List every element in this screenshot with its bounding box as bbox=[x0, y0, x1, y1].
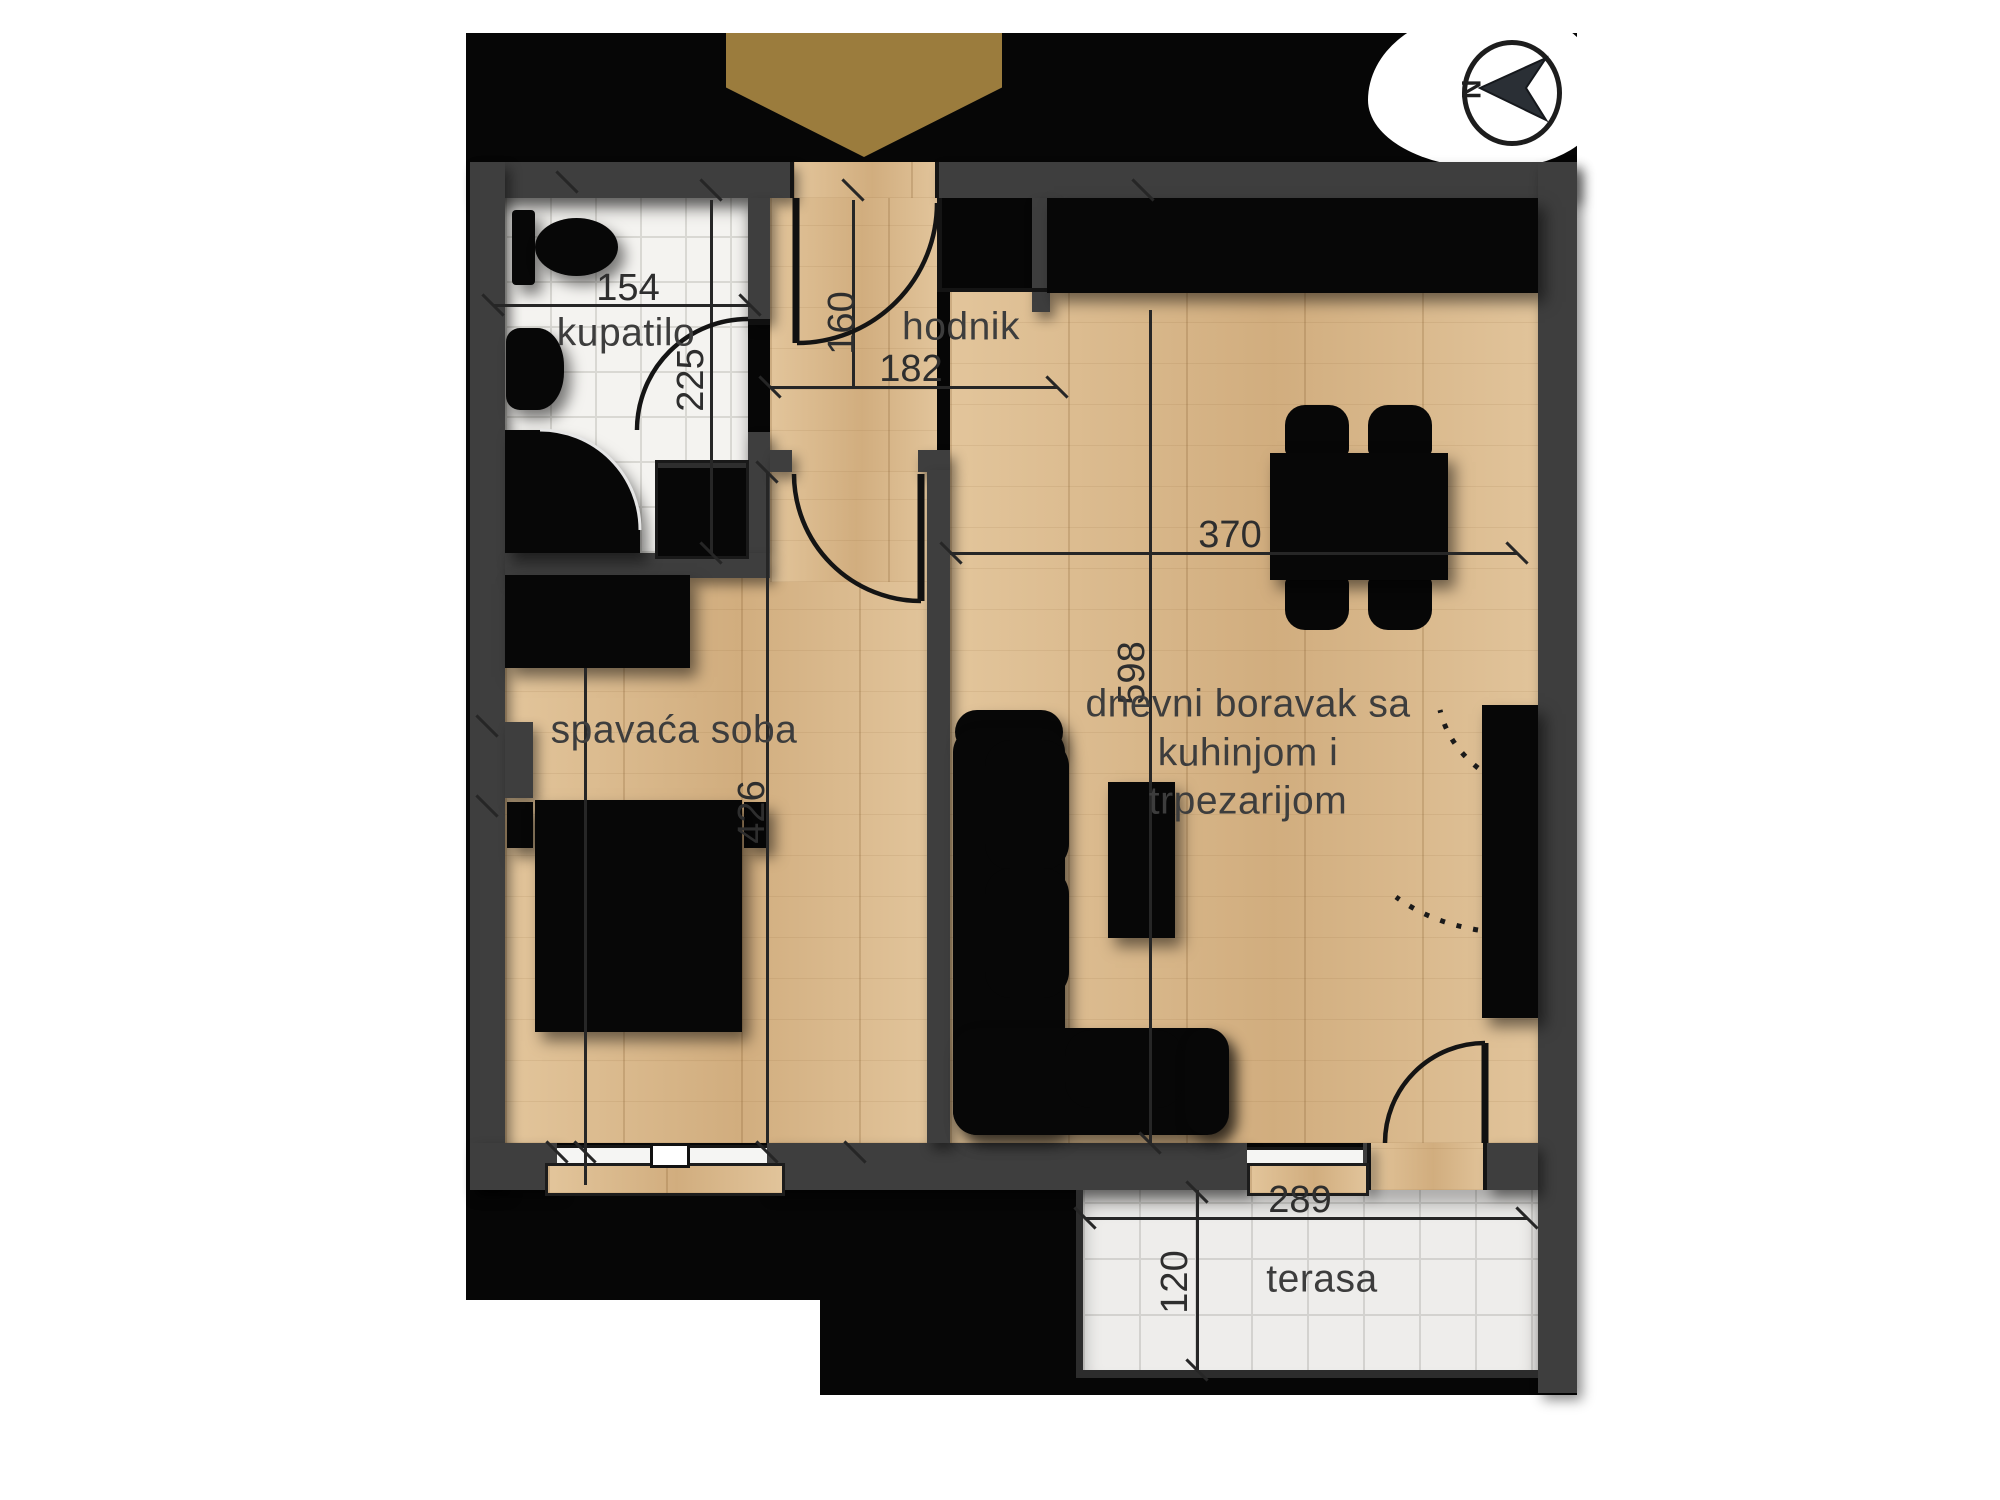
wall-bedroom-door-right bbox=[918, 450, 950, 472]
room-label-bedroom: spavaća soba bbox=[551, 711, 798, 750]
room-label-living-line1: dnevni boravak sa bbox=[1085, 685, 1410, 724]
dim-label-289: 289 bbox=[1268, 1181, 1331, 1219]
wardrobe-symbol bbox=[505, 575, 690, 668]
dining-table-symbol bbox=[1270, 453, 1448, 580]
wall-bedroom-door-left bbox=[770, 450, 792, 472]
terrace-edge-bottom bbox=[1076, 1370, 1538, 1378]
dim-label-154: 154 bbox=[596, 269, 659, 307]
niche-bottom-edge bbox=[942, 288, 1050, 292]
wall-top-left bbox=[470, 162, 793, 198]
balcony-threshold bbox=[1367, 1143, 1487, 1190]
wall-right bbox=[1538, 162, 1577, 1393]
entrance-jamb-right bbox=[935, 162, 939, 198]
dim-label-182: 182 bbox=[879, 350, 942, 388]
bedroom-wall-pier bbox=[505, 722, 533, 798]
room-label-living-line2: kuhinjom i bbox=[1158, 734, 1339, 773]
wall-left bbox=[470, 162, 505, 1190]
dim-label-426: 426 bbox=[733, 780, 771, 843]
room-label-bathroom: kupatilo bbox=[557, 314, 695, 353]
entrance-jamb-left bbox=[790, 162, 794, 198]
dim-label-120: 120 bbox=[1156, 1250, 1194, 1313]
dim-label-160: 160 bbox=[823, 291, 861, 354]
wall-bottom-d bbox=[1487, 1143, 1538, 1190]
bed-symbol bbox=[535, 800, 742, 1032]
dining-chair-symbol bbox=[1285, 576, 1349, 630]
sofa-arm-right bbox=[1185, 1028, 1229, 1135]
compass-north-label: N bbox=[1459, 79, 1486, 99]
balcony-jamb-right bbox=[1483, 1143, 1487, 1190]
wall-bottom-a bbox=[470, 1143, 557, 1190]
bedroom-window-mullion bbox=[650, 1143, 690, 1168]
floor-plan: 154 kupatilo 225 160 hodnik 182 370 598 … bbox=[0, 0, 2000, 1500]
toilet-tank-symbol bbox=[512, 210, 535, 285]
dining-chair-symbol bbox=[1368, 576, 1432, 630]
kitchen-counter-symbol bbox=[1047, 198, 1538, 293]
dim-label-225: 225 bbox=[672, 348, 710, 411]
dim-label-370: 370 bbox=[1198, 516, 1261, 554]
wall-bathroom-right-top bbox=[748, 198, 770, 320]
wall-partition bbox=[927, 470, 950, 1143]
nightstand-left-symbol bbox=[507, 802, 533, 848]
tv-cabinet-symbol bbox=[1482, 705, 1538, 1018]
dim-line-120 bbox=[1196, 1190, 1199, 1372]
sofa-cushion bbox=[985, 740, 1069, 870]
dim-line-598 bbox=[1149, 310, 1152, 1143]
wall-top-right bbox=[937, 162, 1577, 198]
room-label-living-line3: trpezarijom bbox=[1149, 782, 1347, 821]
sink-symbol bbox=[506, 328, 564, 410]
room-label-terrace: terasa bbox=[1266, 1260, 1377, 1299]
sofa-cushion bbox=[1065, 1030, 1183, 1108]
dining-chair-symbol bbox=[1368, 405, 1432, 457]
entrance-threshold bbox=[793, 162, 937, 198]
dining-chair-symbol bbox=[1285, 405, 1349, 457]
sofa-cushion bbox=[985, 868, 1069, 998]
bedroom-floor-door-area bbox=[770, 472, 927, 582]
hallway-niche bbox=[942, 198, 1032, 290]
room-label-hallway: hodnik bbox=[902, 308, 1020, 347]
wall-bottom-b bbox=[767, 1143, 1247, 1190]
